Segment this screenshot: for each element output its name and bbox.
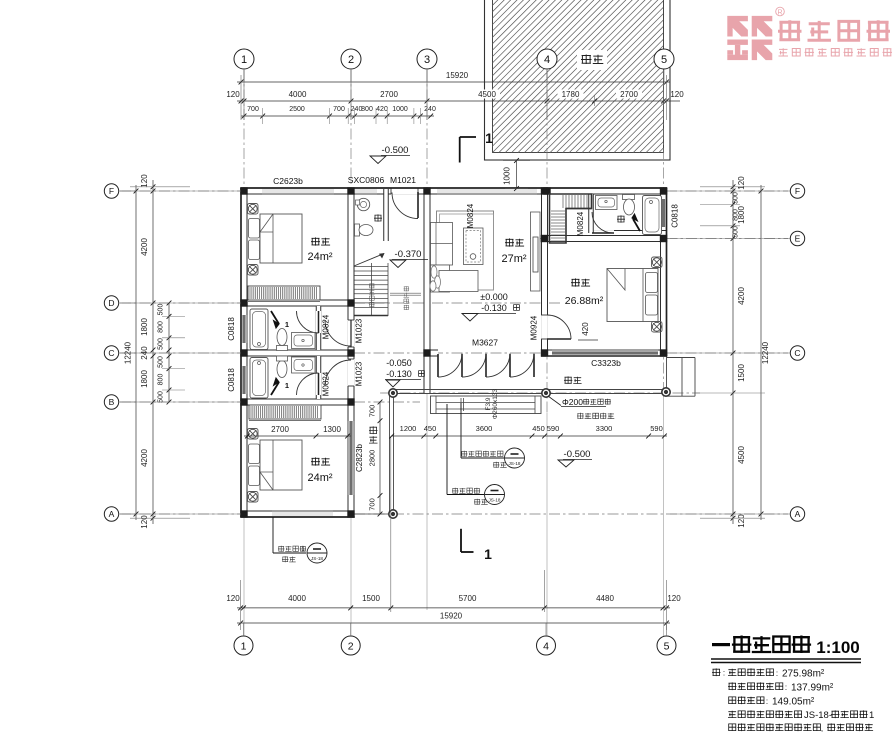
svg-text:JS-18: JS-18: [311, 556, 323, 561]
svg-text:M3627: M3627: [472, 338, 498, 348]
svg-text:800: 800: [733, 209, 740, 221]
svg-text:1: 1: [869, 710, 874, 721]
svg-text:M1021: M1021: [390, 175, 416, 185]
svg-text:3: 3: [424, 54, 430, 66]
svg-text:120: 120: [737, 514, 746, 528]
svg-text:4500: 4500: [478, 90, 496, 99]
svg-text:26.88m²: 26.88m²: [565, 295, 604, 307]
svg-text:A: A: [795, 509, 801, 519]
svg-text:C0818: C0818: [671, 204, 680, 228]
svg-text:450: 450: [532, 424, 545, 433]
svg-text:5: 5: [664, 640, 670, 652]
svg-text:120: 120: [667, 594, 681, 603]
svg-text:500: 500: [158, 391, 165, 403]
svg-text:120: 120: [737, 176, 746, 190]
svg-text:M1023: M1023: [355, 318, 364, 343]
svg-text:1: 1: [484, 546, 492, 562]
svg-text:800: 800: [158, 321, 165, 333]
svg-text:1200: 1200: [400, 424, 417, 433]
svg-text:1000: 1000: [503, 167, 512, 185]
svg-text:2700: 2700: [380, 90, 398, 99]
svg-text:Φ200: Φ200: [562, 397, 583, 407]
svg-text:-0.130: -0.130: [481, 303, 507, 313]
svg-text:700: 700: [247, 106, 259, 113]
svg-text:137.99m²: 137.99m²: [791, 683, 834, 694]
svg-text:-0.500: -0.500: [382, 145, 409, 156]
svg-text:15920: 15920: [446, 71, 469, 80]
svg-text:2: 2: [348, 640, 354, 652]
svg-text:M0824: M0824: [322, 371, 331, 396]
svg-text:590: 590: [547, 424, 560, 433]
svg-text:M0924: M0924: [530, 315, 539, 340]
svg-text:3600: 3600: [476, 424, 493, 433]
svg-text:120: 120: [670, 90, 684, 99]
svg-text:15920: 15920: [440, 612, 463, 621]
svg-text:E: E: [795, 234, 801, 244]
svg-text:120: 120: [140, 515, 149, 529]
svg-text:1000: 1000: [392, 106, 408, 113]
svg-text:24m²: 24m²: [307, 472, 332, 484]
svg-text::: :: [723, 669, 725, 678]
svg-text:JS-18: JS-18: [488, 498, 500, 503]
svg-text:M1023: M1023: [355, 361, 364, 386]
svg-text:420: 420: [581, 322, 590, 336]
svg-text:2500: 2500: [289, 106, 305, 113]
svg-text:149.05m²: 149.05m²: [772, 697, 815, 708]
svg-text:4: 4: [543, 640, 549, 652]
svg-text:5: 5: [661, 54, 667, 66]
svg-text:120: 120: [140, 174, 149, 188]
svg-text:C0818: C0818: [227, 368, 236, 392]
svg-text:500: 500: [158, 304, 165, 316]
svg-text:4000: 4000: [288, 594, 306, 603]
svg-text:4500: 4500: [737, 446, 746, 464]
svg-text:5700: 5700: [459, 594, 477, 603]
svg-text:2: 2: [348, 54, 354, 66]
svg-text:-0.370: -0.370: [395, 249, 422, 260]
svg-text:24m²: 24m²: [307, 251, 332, 263]
svg-text:C: C: [794, 348, 800, 358]
svg-text:700: 700: [368, 405, 377, 418]
svg-text:1: 1: [285, 381, 289, 390]
svg-text:700: 700: [333, 106, 345, 113]
svg-text:,: ,: [821, 724, 823, 733]
svg-text:120: 120: [226, 594, 240, 603]
svg-text:1800: 1800: [140, 318, 149, 336]
svg-text:±0.000: ±0.000: [480, 292, 507, 302]
svg-text:4200: 4200: [140, 238, 149, 256]
svg-text:500: 500: [158, 338, 165, 350]
svg-text:F: F: [795, 186, 800, 196]
svg-text:1: 1: [301, 546, 305, 553]
svg-text:500: 500: [733, 226, 740, 238]
svg-text:1500: 1500: [737, 364, 746, 382]
svg-text:Φ260x133: Φ260x133: [492, 389, 499, 420]
svg-text:1: 1: [241, 640, 247, 652]
svg-text:240: 240: [424, 106, 436, 113]
svg-text:F: F: [109, 186, 114, 196]
svg-text:120: 120: [226, 90, 240, 99]
svg-text:D: D: [108, 298, 114, 308]
svg-text:450: 450: [424, 424, 437, 433]
svg-text:1500: 1500: [362, 594, 380, 603]
svg-text:-0.130: -0.130: [386, 369, 412, 379]
svg-text:27m²: 27m²: [501, 253, 526, 265]
svg-text:C2823b: C2823b: [355, 443, 364, 472]
svg-text:F3.9: F3.9: [485, 397, 492, 410]
svg-text:1: 1: [241, 54, 247, 66]
svg-text:C2623b: C2623b: [273, 176, 303, 186]
svg-text::: :: [776, 669, 778, 678]
svg-text:4200: 4200: [737, 287, 746, 305]
svg-text::: :: [785, 683, 787, 692]
svg-text::: :: [766, 697, 768, 706]
svg-text:B: B: [109, 397, 115, 407]
svg-text:800: 800: [158, 374, 165, 386]
svg-text:JS-18: JS-18: [508, 461, 520, 466]
svg-text:1780: 1780: [562, 90, 580, 99]
svg-text:M0824: M0824: [576, 211, 585, 236]
svg-text:C3323b: C3323b: [591, 358, 621, 368]
svg-text:4: 4: [544, 54, 550, 66]
svg-text:420: 420: [376, 106, 388, 113]
svg-text:2800: 2800: [368, 450, 377, 467]
svg-text:1: 1: [285, 320, 289, 329]
svg-text:700: 700: [368, 498, 377, 511]
svg-text:2700: 2700: [271, 425, 289, 434]
svg-text:4000: 4000: [289, 90, 307, 99]
svg-text:1: 1: [485, 130, 493, 146]
svg-text:M0824: M0824: [322, 314, 331, 339]
svg-text:4200: 4200: [140, 449, 149, 467]
svg-text:C0818: C0818: [227, 317, 236, 341]
svg-text:SXC0806: SXC0806: [348, 175, 385, 185]
svg-text:R: R: [777, 9, 782, 16]
svg-text:4480: 4480: [596, 594, 614, 603]
svg-text:JS-18-: JS-18-: [804, 710, 832, 721]
svg-text:500: 500: [733, 192, 740, 204]
svg-text:1800: 1800: [140, 370, 149, 388]
svg-text:500: 500: [158, 356, 165, 368]
svg-text:M0824: M0824: [466, 203, 475, 228]
svg-text:275.98m²: 275.98m²: [782, 669, 825, 680]
svg-text:590: 590: [650, 424, 663, 433]
svg-text:1300: 1300: [323, 425, 341, 434]
svg-text:800: 800: [361, 106, 373, 113]
svg-text:-0.500: -0.500: [564, 449, 591, 460]
svg-text:1:100: 1:100: [816, 638, 859, 657]
svg-text:-0.050: -0.050: [386, 358, 412, 368]
svg-text:A: A: [109, 509, 115, 519]
svg-text:C: C: [108, 348, 114, 358]
svg-text:2700: 2700: [620, 90, 638, 99]
svg-text:3300: 3300: [596, 424, 613, 433]
